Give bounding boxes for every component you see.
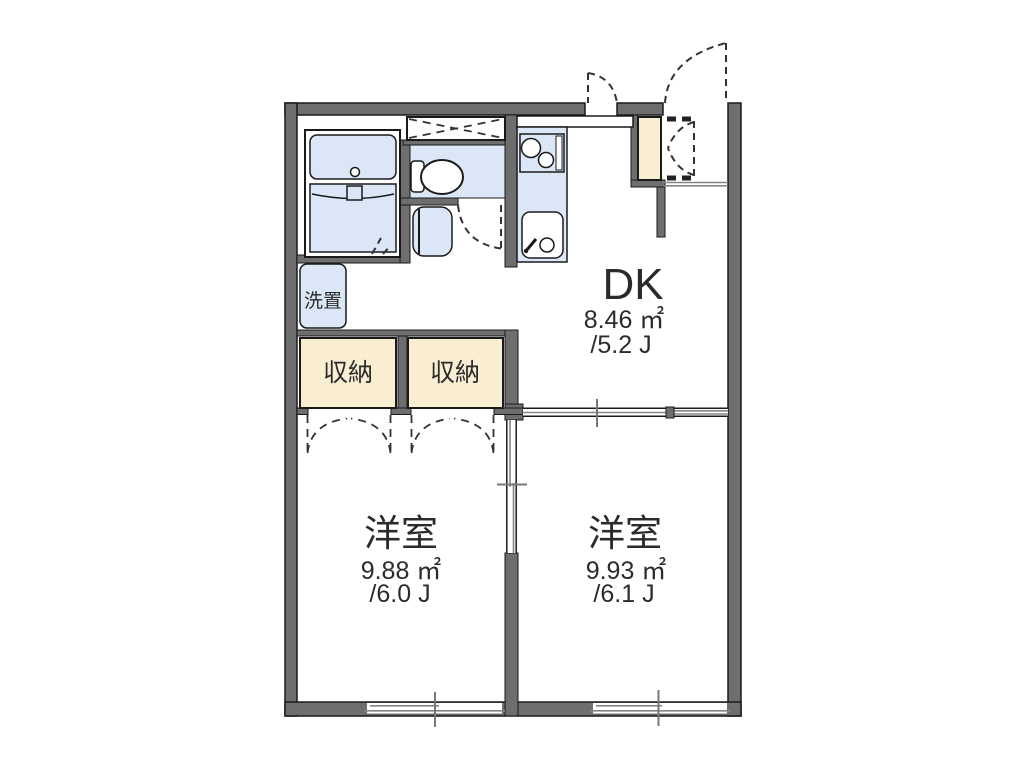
entrance-wall-stub xyxy=(657,187,665,237)
entrance-closet-bifold-door xyxy=(668,121,694,176)
service-door-swing xyxy=(588,73,617,103)
bedroom-right-label: 洋室 xyxy=(588,513,662,554)
stove-burner-icon xyxy=(522,139,541,158)
closet-left-label: 収納 xyxy=(323,359,373,387)
floorplan-canvas: 洗置 収納 収納 xyxy=(0,0,1016,772)
partition-slider-band xyxy=(507,420,517,553)
bedroom-left-label: 洋室 xyxy=(364,513,438,554)
closet-right-folding-door xyxy=(412,415,494,454)
bedroom-right-area-tatami: /6.1 J xyxy=(593,580,654,608)
dk-area-m2: 8.46 ㎡ xyxy=(584,306,665,334)
dk-label: DK xyxy=(602,260,663,309)
closet-left-folding-door xyxy=(308,415,391,454)
right-wall xyxy=(728,103,741,716)
bedroom-left-area-tatami: /6.0 J xyxy=(369,580,430,608)
bathroom-unit xyxy=(305,130,400,257)
stove-burner-icon xyxy=(539,153,554,168)
dk-area-tatami: /5.2 J xyxy=(590,331,651,359)
entrance-door-swing xyxy=(665,43,726,103)
toilet-bowl-icon xyxy=(421,160,463,194)
dk-slider-stop xyxy=(666,407,674,418)
entrance-wall-horizontal xyxy=(631,180,665,187)
kitchen-window xyxy=(517,116,633,127)
toilet-dk-wall xyxy=(505,115,517,267)
corridor-wall xyxy=(297,330,517,336)
closet-right-label: 収納 xyxy=(430,359,480,387)
window-right xyxy=(593,703,727,714)
laundry-label: 洗置 xyxy=(304,290,342,312)
top-wall-mid xyxy=(617,103,663,115)
top-wall-left xyxy=(285,103,585,115)
sink-faucet-knob-icon xyxy=(524,249,528,253)
stove-grill-icon xyxy=(556,136,562,170)
shoe-cabinet xyxy=(638,117,661,180)
floorplan-svg: 洗置 収納 収納 xyxy=(0,0,1016,772)
closet-divider-wall xyxy=(398,336,407,414)
center-wall-lower xyxy=(505,553,518,716)
left-wall xyxy=(285,103,297,716)
toilet-door-swing xyxy=(458,205,501,249)
bathtub-faucet-icon xyxy=(347,186,362,200)
kitchen xyxy=(517,116,633,262)
toilet-bottom-wall xyxy=(400,198,458,205)
vanity-drain-icon xyxy=(351,168,360,177)
